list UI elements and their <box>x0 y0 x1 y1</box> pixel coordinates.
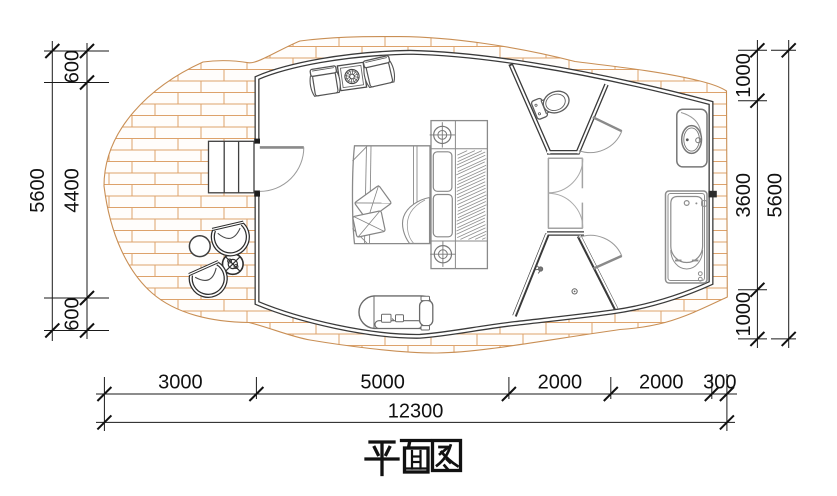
svg-text:12300: 12300 <box>388 400 444 422</box>
svg-text:1000: 1000 <box>733 292 755 337</box>
svg-text:600: 600 <box>62 297 84 330</box>
svg-text:5000: 5000 <box>360 372 405 394</box>
svg-text:5600: 5600 <box>765 173 787 218</box>
svg-text:4400: 4400 <box>62 168 84 213</box>
svg-text:300: 300 <box>703 372 736 394</box>
svg-text:5600: 5600 <box>27 168 49 213</box>
svg-text:2000: 2000 <box>639 372 684 394</box>
svg-text:1000: 1000 <box>733 53 755 98</box>
svg-text:600: 600 <box>62 50 84 83</box>
svg-text:3000: 3000 <box>158 372 203 394</box>
svg-text:2000: 2000 <box>538 372 583 394</box>
svg-text:3600: 3600 <box>733 173 755 218</box>
